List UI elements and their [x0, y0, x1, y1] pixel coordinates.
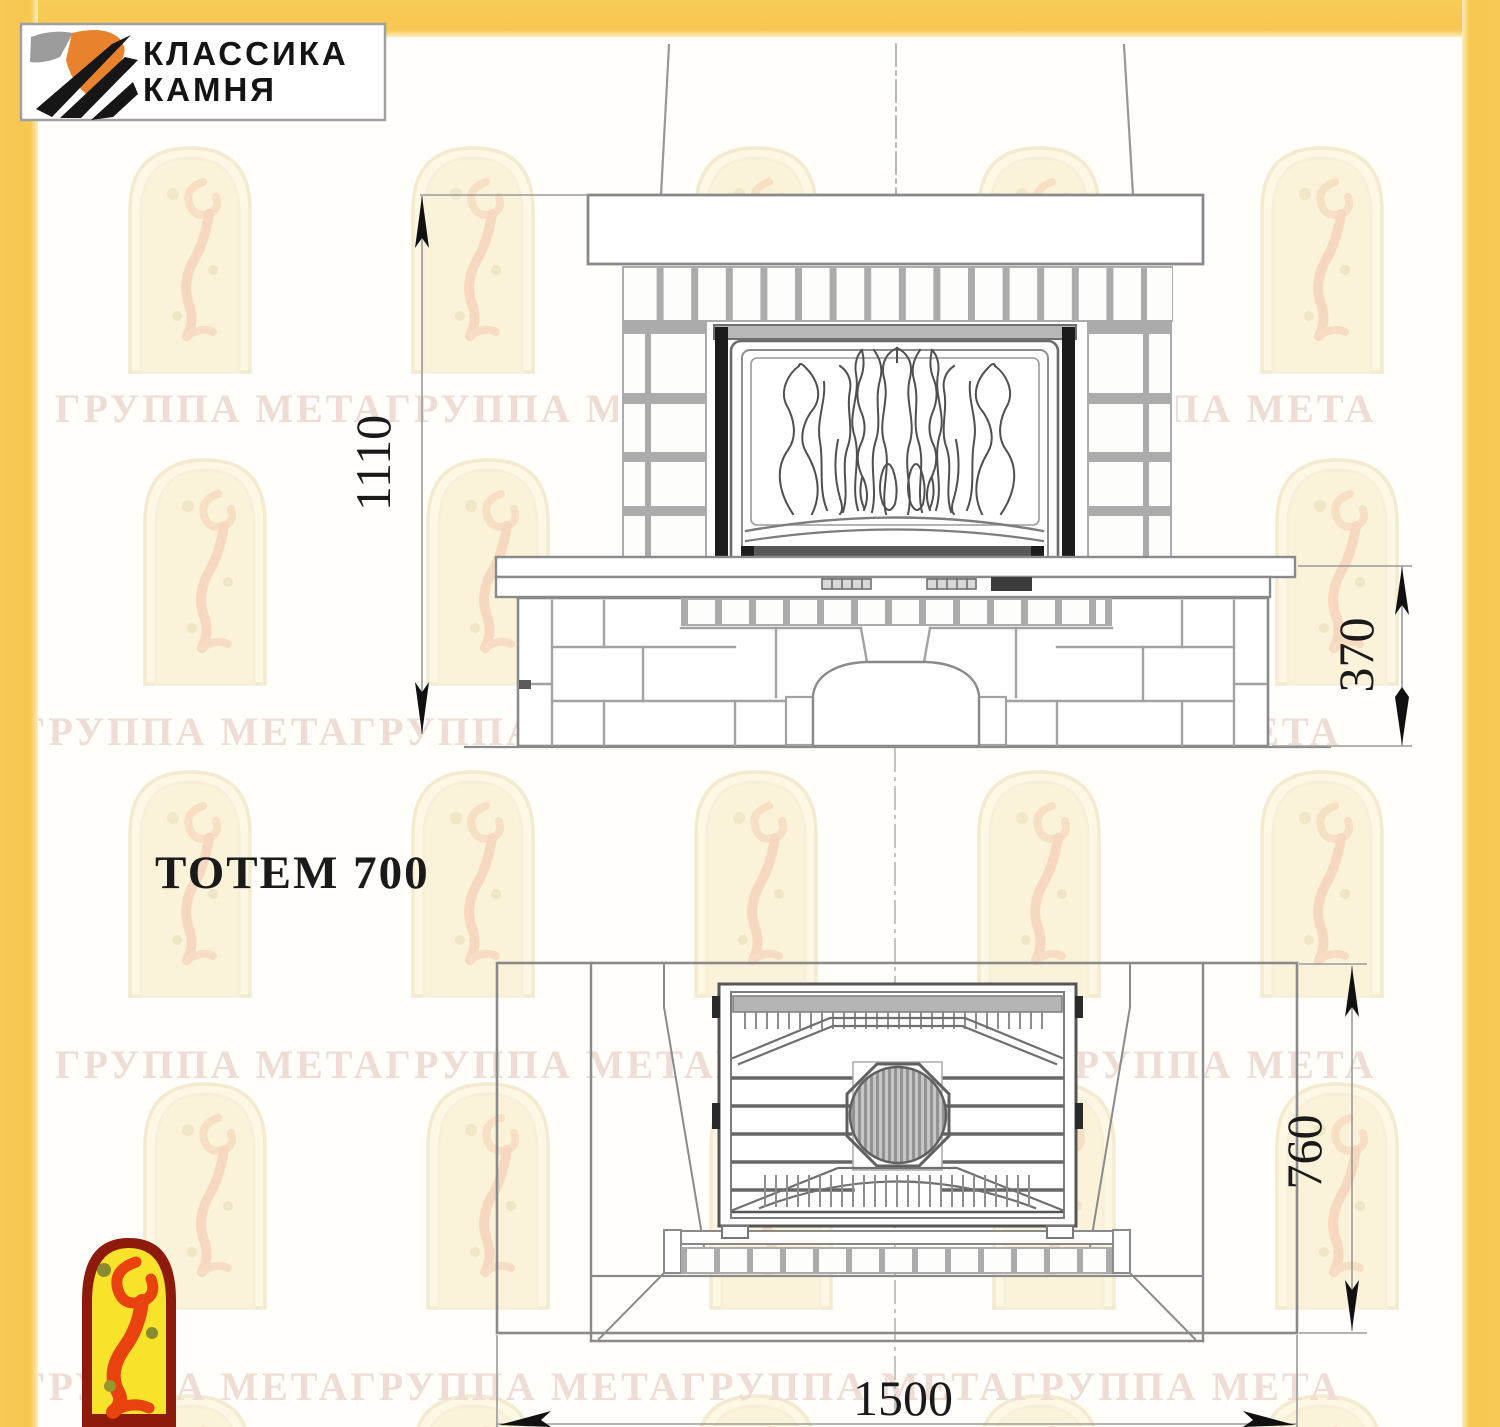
svg-text:370: 370 — [1328, 618, 1384, 693]
svg-text:1500: 1500 — [853, 1370, 953, 1426]
svg-text:ТОТЕМ 700: ТОТЕМ 700 — [155, 847, 430, 899]
svg-text:760: 760 — [1276, 1115, 1332, 1190]
svg-text:ГРУППА МЕТАГРУППА МЕТАГРУППА М: ГРУППА МЕТАГРУППА МЕТАГРУППА МЕТАГРУППА … — [20, 1364, 1341, 1409]
svg-text:1110: 1110 — [345, 415, 401, 511]
svg-text:ГРУППА МЕТАГРУППА МЕТАГРУППА М: ГРУППА МЕТАГРУППА МЕТАГРУППА МЕТАГРУППА … — [55, 1042, 1376, 1087]
svg-text:КЛАССИКА: КЛАССИКА — [143, 35, 349, 72]
svg-text:КАМНЯ: КАМНЯ — [143, 71, 277, 108]
